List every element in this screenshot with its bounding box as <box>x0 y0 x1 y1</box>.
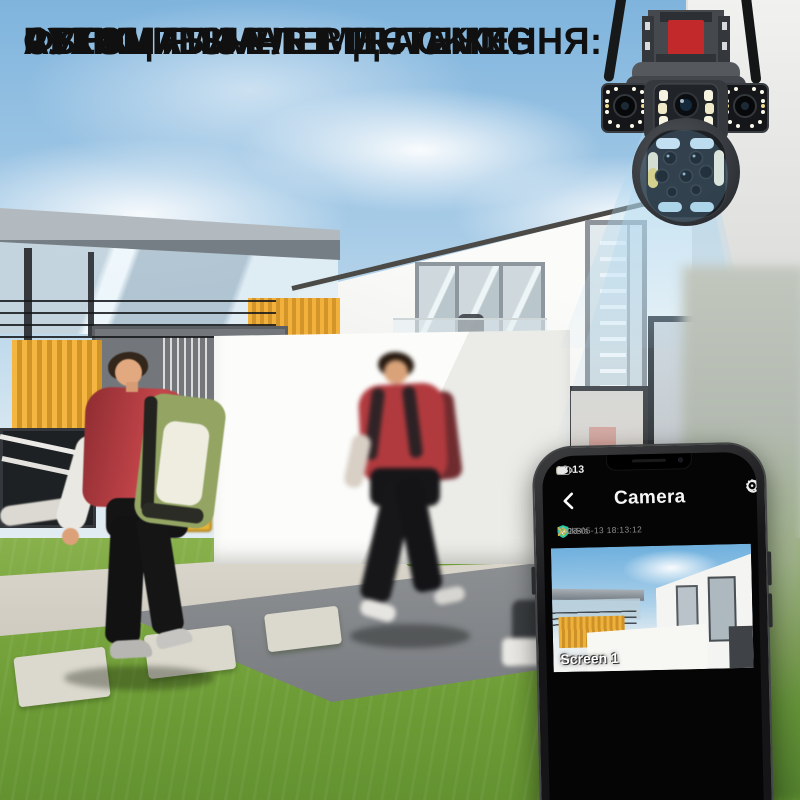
volume-button[interactable] <box>768 593 773 627</box>
settings-icon[interactable]: ⚙ <box>744 477 760 494</box>
bitrate-label: 200kB/s <box>557 525 588 536</box>
status-bar: 18:13 <box>556 457 744 479</box>
promo-image: АВТОМАТИЧНЕ ВІДСТЕЖЕННЯ: ФУНКЦІЯ SMART T… <box>0 0 800 800</box>
camera-feed-screen-1[interactable]: Screen 1 <box>551 544 754 673</box>
green-backpack <box>132 392 227 531</box>
volume-button[interactable] <box>767 551 772 585</box>
app-header: Camera ⚙ <box>552 478 747 520</box>
power-button[interactable] <box>531 567 536 595</box>
promo-line-4: РУХОМИМИ ЕЛЕМЕНТАМИ <box>23 20 507 66</box>
screen-1-label: Screen 1 <box>560 650 619 667</box>
security-camera <box>596 0 774 226</box>
walking-man-blurred <box>336 350 468 642</box>
phone-screen: 18:13 <box>542 452 764 800</box>
camera-feed-screen-2[interactable]: Screen 2 <box>554 677 557 795</box>
stream-info-row: 2023-05-13 18:13:12 200kB/s <box>557 518 747 540</box>
smartphone: 18:13 <box>532 441 774 800</box>
camera-feeds: Screen 1 Screen 2 <box>551 544 757 800</box>
man-with-green-backpack <box>58 346 218 698</box>
bicycle-silhouette <box>555 750 556 768</box>
camera-feed-screen-3[interactable]: Screen 3 <box>554 677 557 795</box>
battery-icon <box>556 465 573 474</box>
tall-window <box>585 220 647 410</box>
page-title: Camera <box>553 485 747 511</box>
